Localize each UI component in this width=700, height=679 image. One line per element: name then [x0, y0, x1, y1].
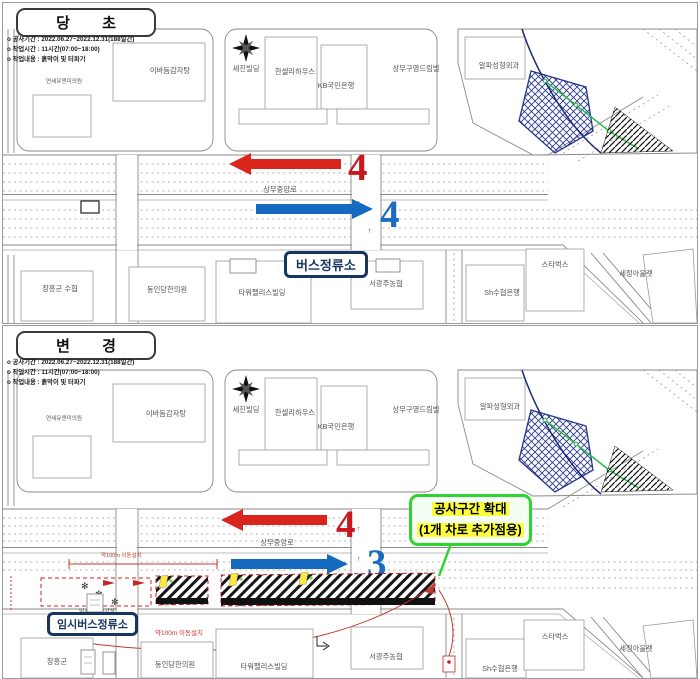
building-label: 장흥군 수협: [42, 284, 78, 293]
dimension-note: 약100m 이동설치: [101, 551, 142, 559]
traffic-plan-comparison: ↑ ↑ ↑ 상무중앙로 4 4: [0, 0, 700, 679]
crosswalk-left: [117, 155, 137, 250]
road-name: 상무중앙로: [263, 185, 297, 194]
construction-info: o 공사기간 : 2022.06.27~2022.12.31(188일간) o …: [7, 35, 134, 64]
building-label: 세진빌딩: [233, 64, 260, 73]
building-label: 알파성형외과: [480, 402, 521, 411]
info-content: o 작업내용 : 흙막이 및 터파기: [7, 55, 134, 65]
info-period: o 공사기간 : 2022.06.27~2022.12.31(188일간): [7, 358, 134, 368]
svg-text:✻: ✻: [111, 597, 119, 607]
info-content: o 작업내용 : 흙막이 및 터파기: [7, 378, 134, 388]
building-label: 세정아울렛: [619, 269, 653, 278]
info-hours: o 작업시간 : 11시간(07:00~18:00): [7, 45, 134, 55]
building-label: 타워팰리스빌딩: [241, 662, 288, 671]
temp-bus-stop-label: 임시버스정류소: [47, 612, 138, 636]
building-label: 이바돔감자탕: [150, 66, 191, 75]
building-label: 서광주농협: [369, 279, 403, 288]
building-label: 연세유앤미의원: [46, 414, 82, 422]
temp-stop-sign: [87, 594, 103, 612]
building-label: 타워팰리스빌딩: [239, 288, 286, 297]
bus-shelter: [376, 259, 400, 272]
westbound-lane-count: 4: [336, 503, 356, 546]
merge-arrow: [133, 580, 145, 586]
building-label: 연세유앤미의원: [46, 77, 82, 85]
building-label: 스타벅스: [542, 632, 569, 641]
panel-original: ↑ ↑ ↑ 상무중앙로 4 4: [2, 2, 698, 324]
svg-text:✻: ✻: [81, 581, 89, 591]
construction-strip: [156, 572, 435, 606]
building-label: 알파성형외과: [479, 61, 520, 70]
median-island: [81, 201, 99, 213]
construction-info: o 공사기간 : 2022.06.27~2022.12.31(188일간) o …: [7, 358, 134, 387]
info-hours: o 작업시간 : 11시간(07:00~18:00): [7, 368, 134, 378]
westbound-lane-count: 4: [348, 146, 368, 189]
building-label: KB국민은행: [318, 422, 355, 431]
building-label: 동인당한의원: [147, 285, 187, 294]
bus-stop-label: 버스정류소: [284, 251, 368, 278]
marker-box: [443, 656, 455, 672]
eastbound-arrow: [231, 554, 348, 574]
building-label: 동인당한의원: [155, 660, 195, 669]
section-header-original: 당 초: [16, 8, 156, 37]
eastbound-arrow: [256, 199, 373, 219]
crosswalk-left: [117, 509, 137, 614]
merge-arrow: [103, 580, 115, 586]
svg-text:↑: ↑: [368, 228, 372, 235]
building-label: Sh수협은행: [482, 664, 518, 673]
dimension-line: 약100m 이동설치: [69, 551, 217, 569]
building-label: 한셀리하우스: [275, 408, 316, 417]
turn-arrow-icon: [317, 636, 329, 650]
expansion-callout: 공사구간 확대 (1개 차로 추가점용): [409, 494, 532, 546]
westbound-arrow: [229, 153, 341, 175]
building-label: 세정아울렛: [619, 644, 653, 653]
building-label: KB국민은행: [318, 81, 355, 90]
expansion-detail: (1개 차로 추가점용): [417, 523, 524, 537]
building-label: 상무구영드림빌: [393, 64, 440, 73]
westbound-arrow: [221, 509, 327, 531]
svg-text:↑: ↑: [357, 556, 361, 563]
temp-stop-sign: [81, 650, 95, 674]
building-label: 한셀리하우스: [275, 67, 316, 76]
info-period: o 공사기간 : 2022.06.27~2022.12.31(188일간): [7, 35, 134, 45]
expansion-title: 공사구간 확대: [432, 502, 508, 516]
building-label: 이바돔감자탕: [146, 409, 187, 418]
building-label: 서광주농협: [369, 652, 403, 661]
temp-stop-sign: [103, 652, 115, 674]
move-note: 약100m 이동설치: [155, 628, 203, 637]
eastbound-lane-count: 4: [380, 193, 400, 236]
building-label: 상무구영드림빌: [393, 405, 440, 414]
building-label: Sh수협은행: [484, 288, 520, 297]
section-header-changed: 변 경: [16, 331, 156, 360]
bus-shelter: [230, 259, 256, 273]
building-label: 장흥군: [47, 657, 67, 666]
building-label: 세진빌딩: [233, 405, 260, 414]
panel-changed: ↑ ↑ ↑ 상무중앙로 4 3: [2, 325, 698, 679]
svg-text:↑: ↑: [357, 526, 361, 533]
road-name: 상무중앙로: [260, 538, 294, 547]
building-label: 스타벅스: [542, 260, 569, 269]
